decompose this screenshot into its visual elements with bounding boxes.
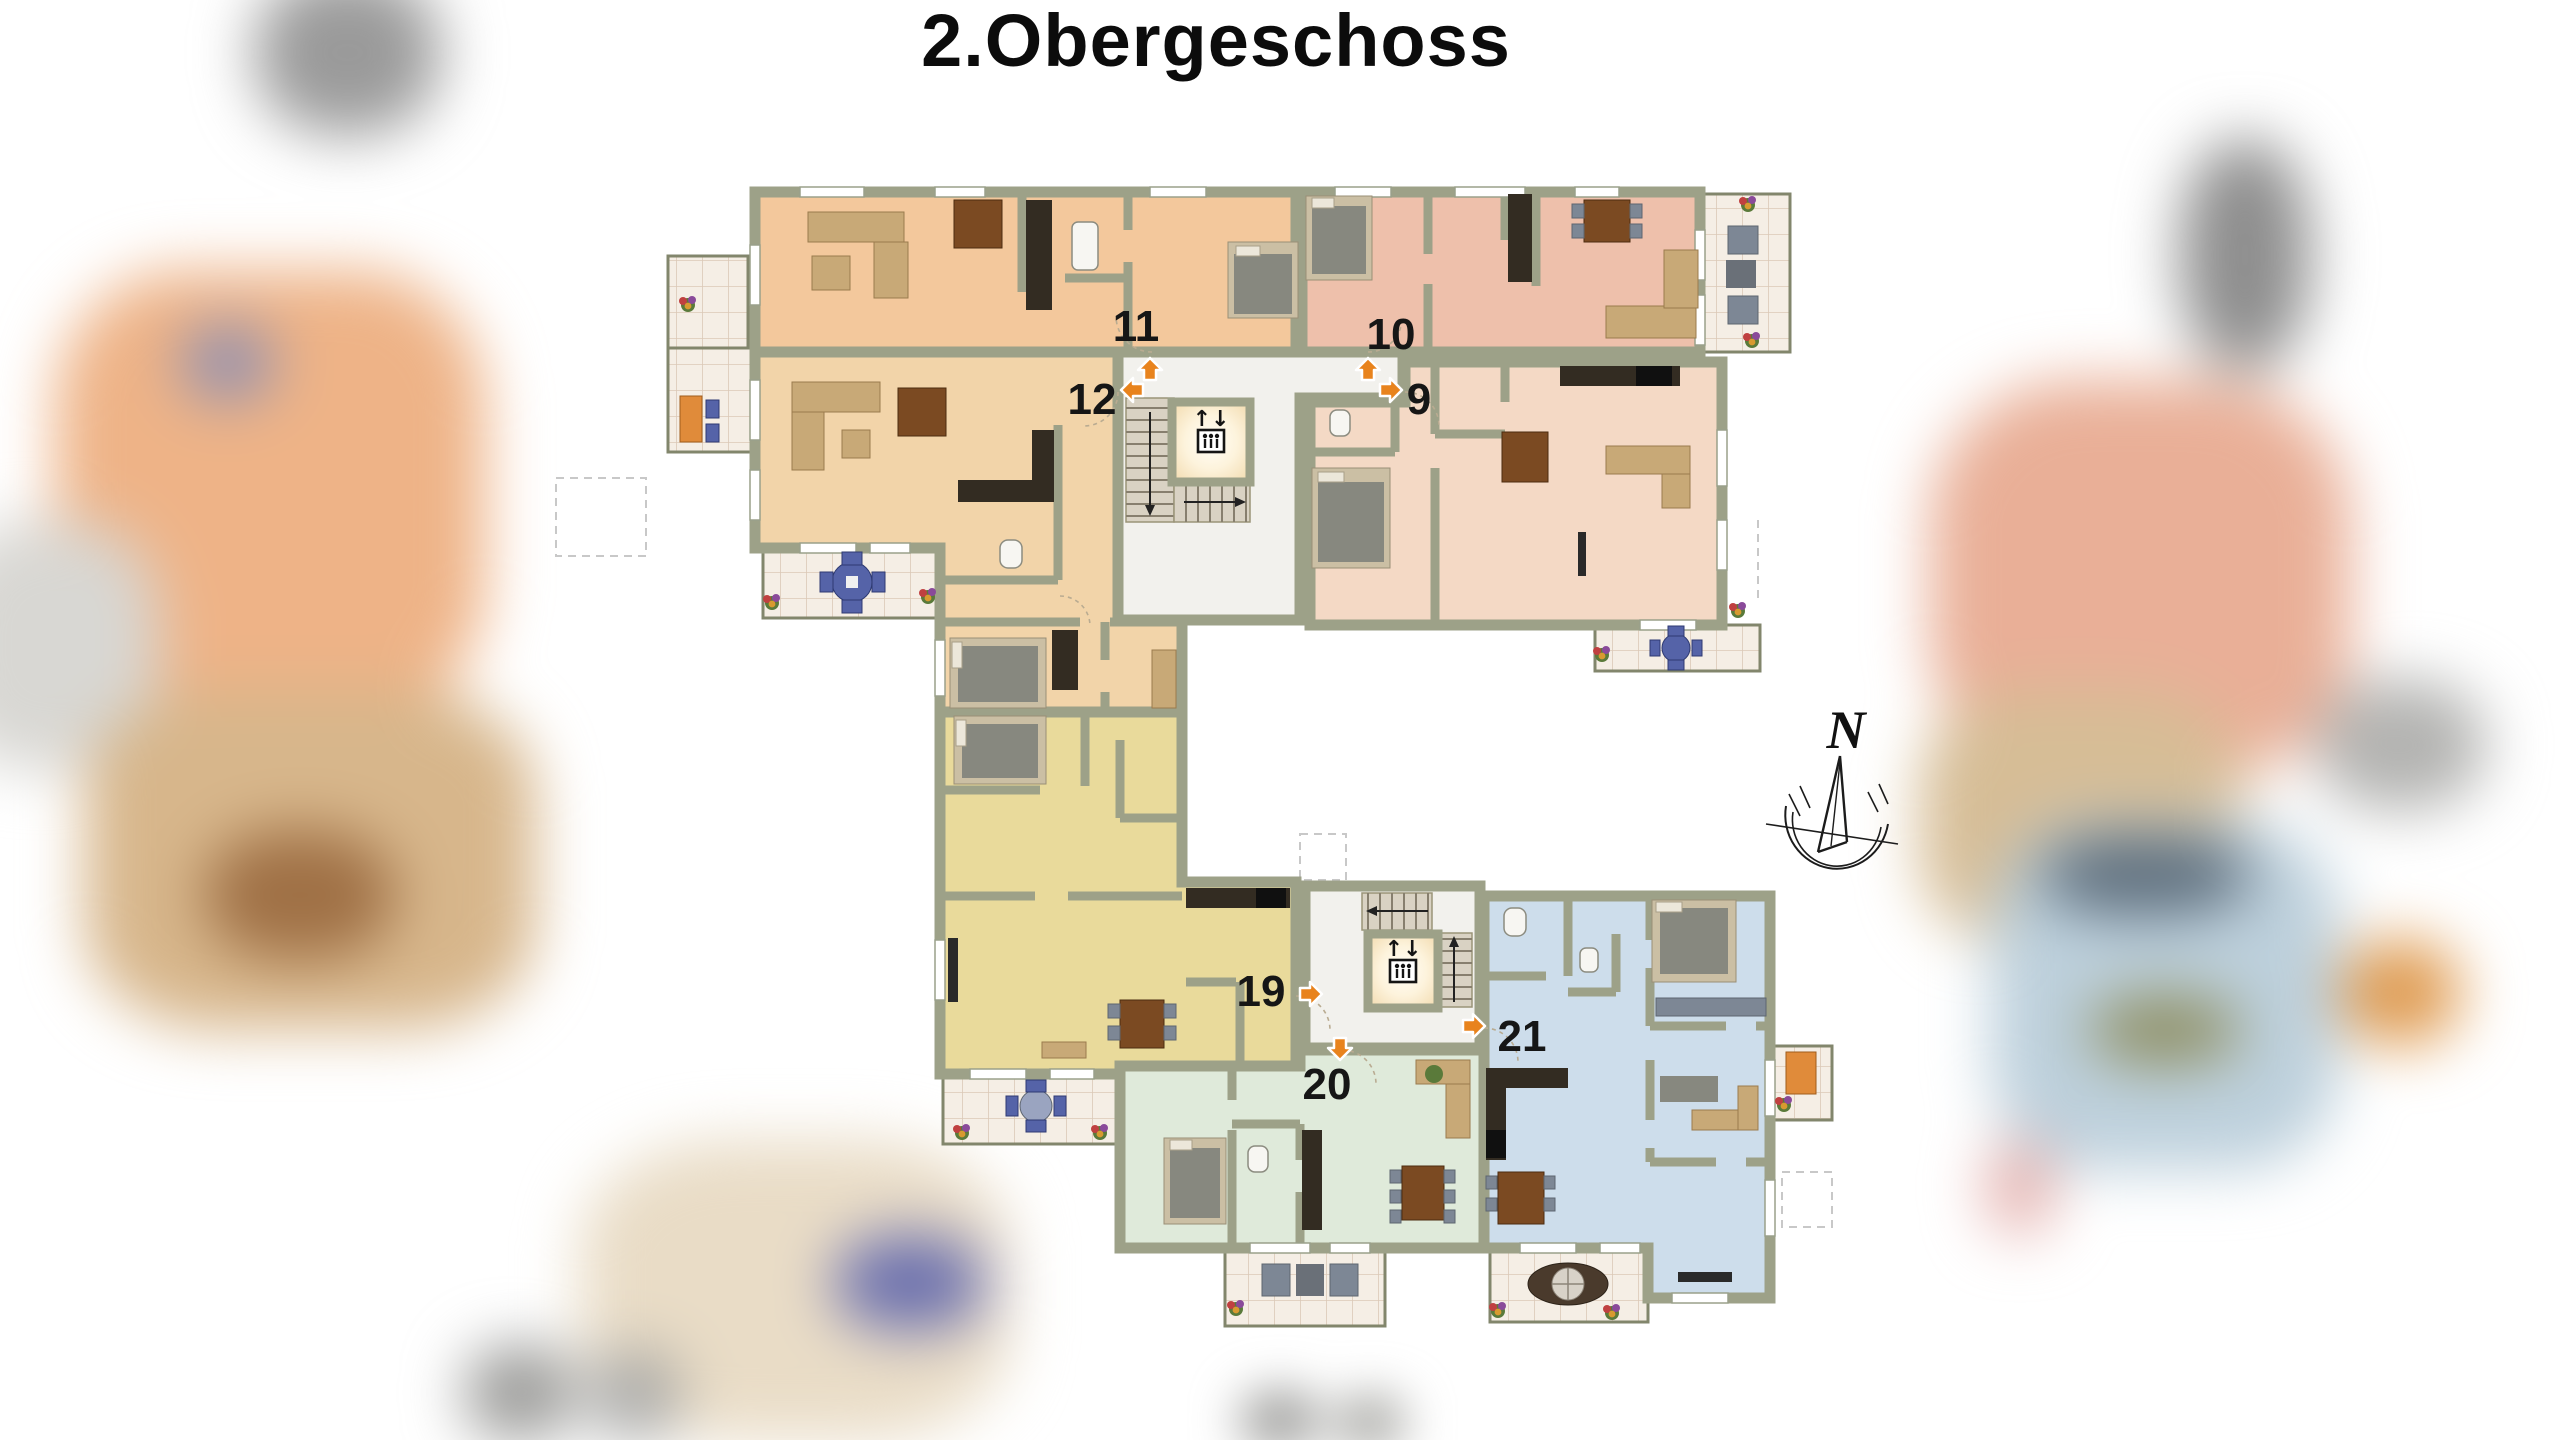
single-bed — [1660, 1076, 1718, 1102]
balcony-desk — [1786, 1052, 1816, 1094]
stove — [1636, 366, 1672, 386]
coffee-table — [812, 256, 850, 290]
pillow — [956, 720, 966, 746]
bed-mattress — [1234, 254, 1292, 314]
terrace-chair — [1668, 626, 1684, 636]
terrace-chair — [1026, 1080, 1046, 1092]
sofa — [808, 212, 904, 242]
compass-north-label: N — [1826, 700, 1868, 760]
kitchen-counter — [1508, 194, 1532, 282]
coffee-table — [842, 430, 870, 458]
terrace-table-top — [846, 576, 858, 588]
dining-table — [898, 388, 946, 436]
terrace-chair — [1692, 640, 1702, 656]
dining-table — [1584, 200, 1630, 242]
terrace-chair — [1262, 1264, 1290, 1296]
dining-table — [954, 200, 1002, 248]
terrace-chair — [1296, 1264, 1324, 1296]
sofa — [1416, 1060, 1470, 1084]
dining-table — [1402, 1166, 1444, 1220]
wardrobe — [1656, 998, 1766, 1016]
terrace-chair — [1330, 1264, 1358, 1296]
sofa — [874, 242, 908, 298]
balcony-table — [680, 396, 702, 442]
apartment-9-label: 9 — [1407, 375, 1431, 424]
bed-mattress — [1660, 908, 1728, 974]
bed-mattress — [962, 724, 1038, 778]
tv — [1678, 1272, 1732, 1282]
pillow — [952, 642, 962, 668]
terrace-chair — [1006, 1096, 1018, 1116]
bed-mattress — [1318, 482, 1384, 562]
terrace-chair — [1650, 640, 1660, 656]
kitchen-counter — [1302, 1130, 1322, 1230]
terrace-chair — [1026, 1120, 1046, 1132]
toilet — [1000, 540, 1022, 568]
pillow — [1312, 198, 1334, 208]
sofa — [1664, 250, 1698, 308]
sofa — [792, 412, 824, 470]
plant — [1425, 1065, 1443, 1083]
compass-arc — [1785, 806, 1888, 869]
stove — [1256, 888, 1286, 908]
dining-table — [1498, 1172, 1544, 1224]
dining-table — [1502, 432, 1548, 482]
desk — [1152, 650, 1176, 708]
sofa — [1446, 1084, 1470, 1138]
terrace-chair — [842, 552, 862, 565]
sofa — [1606, 446, 1690, 474]
stove — [1486, 1130, 1506, 1158]
kitchen-counter — [1032, 430, 1054, 480]
toilet — [1504, 908, 1526, 936]
apartment-regions — [755, 192, 1770, 1298]
apartment-20-label: 20 — [1303, 1060, 1352, 1109]
compass: N — [1766, 700, 1898, 869]
toilet — [1248, 1146, 1268, 1172]
terrace-table — [1020, 1090, 1052, 1122]
desk — [1738, 1086, 1758, 1130]
balcony-chair — [1728, 226, 1758, 254]
balcony-chair — [706, 400, 719, 418]
bed-mattress — [958, 646, 1038, 702]
terrace-chair — [842, 600, 862, 613]
bed-mattress — [1312, 206, 1366, 274]
elevator-pictogram-upper — [1193, 407, 1230, 452]
kitchen-counter — [958, 480, 1054, 502]
elevator-pictogram-lower — [1385, 937, 1422, 982]
pillow — [1656, 902, 1682, 912]
pillow — [1170, 1140, 1192, 1150]
apartment-11-label: 11 — [1113, 302, 1160, 351]
apartment-21-label: 21 — [1498, 1012, 1547, 1061]
bathtub — [1072, 222, 1098, 270]
balcony-chair — [706, 424, 719, 442]
balcony-chair — [1728, 296, 1758, 324]
pillow — [1236, 246, 1260, 256]
apartment-10-label: 10 — [1367, 310, 1416, 359]
page-title: 2.Obergeschoss — [921, 0, 1511, 82]
sink — [1580, 948, 1598, 972]
apartment-12-label: 12 — [1068, 375, 1117, 424]
balcony-chair — [1726, 260, 1756, 288]
terrace-chair — [820, 572, 833, 592]
terrace-chair — [1054, 1096, 1066, 1116]
terrace-chair — [872, 572, 885, 592]
sofa — [792, 382, 880, 412]
bed-mattress — [1170, 1148, 1220, 1218]
tv — [948, 938, 958, 1002]
tv — [1578, 532, 1586, 576]
wardrobe — [1052, 630, 1078, 690]
kitchen-counter — [1026, 200, 1052, 310]
toilet — [1330, 410, 1350, 436]
stairwell-upper — [1126, 398, 1250, 522]
pillow — [1318, 472, 1344, 482]
sideboard — [1042, 1042, 1086, 1058]
floor-plan: ↑↓ 2.Obergeschoss — [0, 0, 2560, 1440]
dining-table — [1120, 1000, 1164, 1048]
terrace-chair — [1668, 660, 1684, 670]
screenshot-stage: ↑↓ 2.Obergeschoss — [0, 0, 2560, 1440]
sofa — [1606, 306, 1696, 338]
sofa — [1662, 474, 1690, 508]
apartment-19-label: 19 — [1237, 967, 1286, 1016]
terrace-table — [1662, 634, 1690, 662]
